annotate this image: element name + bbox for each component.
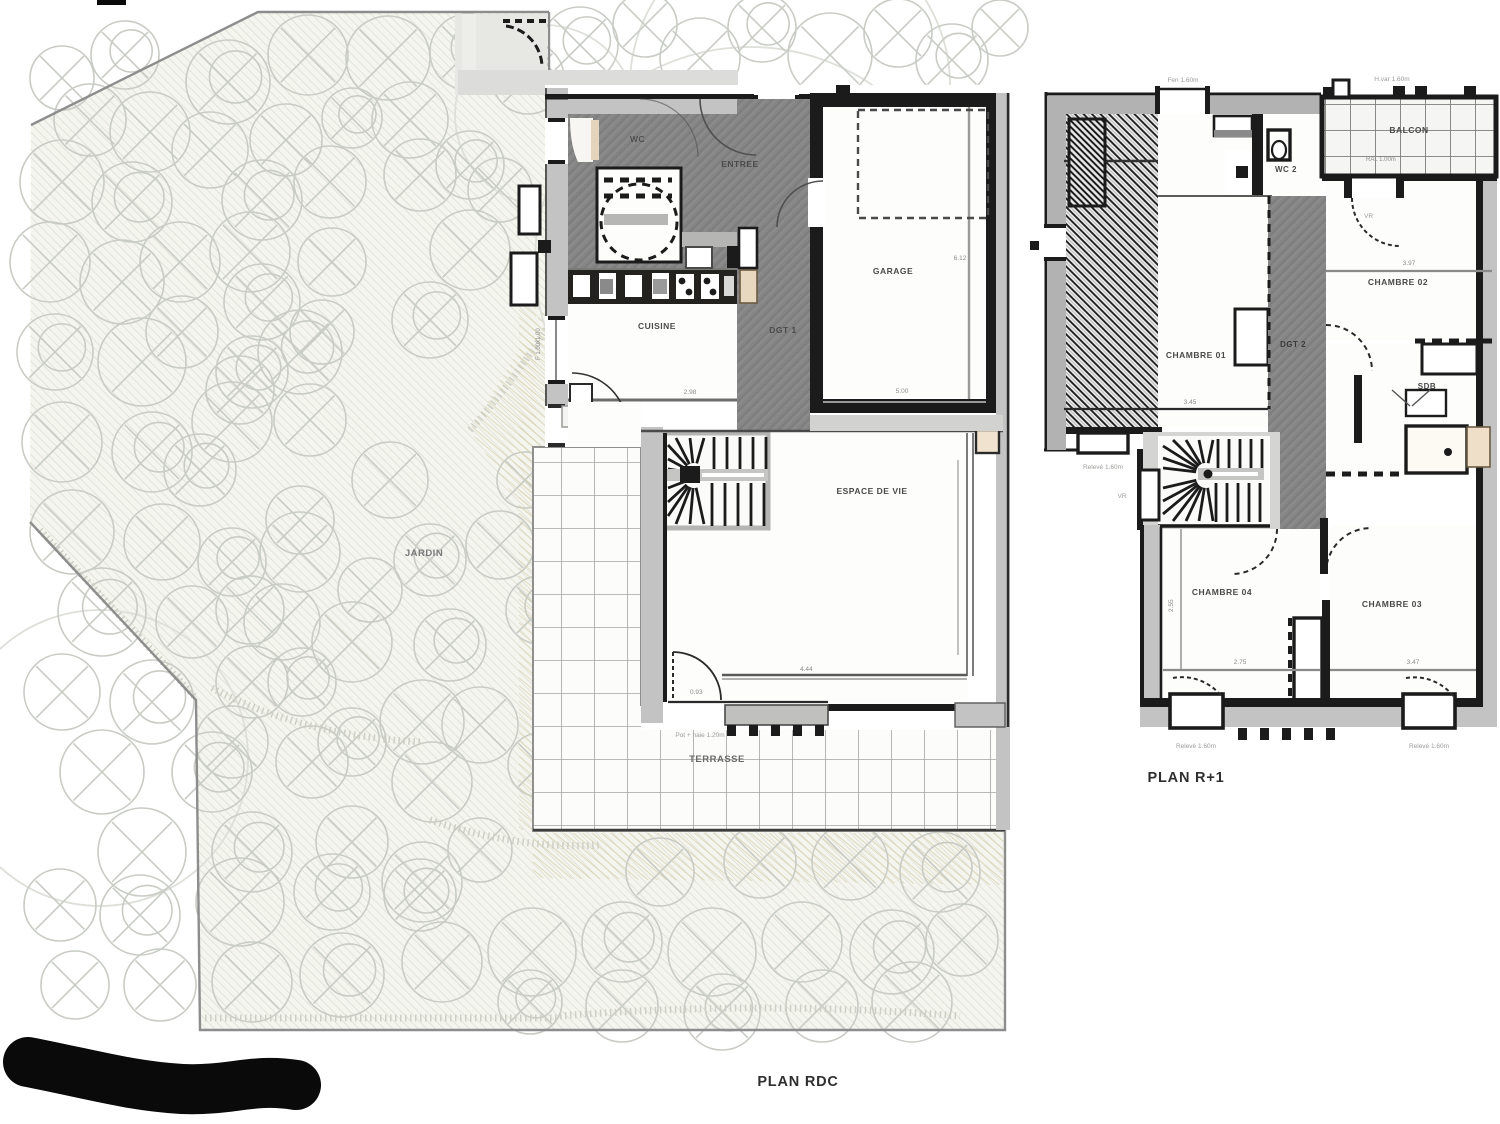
svg-text:PLAN RDC: PLAN RDC	[757, 1074, 838, 1090]
svg-text:WC 2: WC 2	[1275, 165, 1297, 174]
svg-text:CHAMBRE 01: CHAMBRE 01	[1166, 350, 1226, 360]
svg-text:CHAMBRE 02: CHAMBRE 02	[1368, 277, 1428, 287]
svg-text:H.var 1.60m: H.var 1.60m	[1374, 76, 1409, 83]
svg-text:3.97: 3.97	[1403, 260, 1416, 267]
svg-text:3.45: 3.45	[1184, 399, 1197, 406]
svg-text:VR: VR	[1117, 493, 1126, 500]
svg-text:WC: WC	[630, 134, 645, 144]
svg-text:Fen 1.60m: Fen 1.60m	[1167, 77, 1198, 84]
svg-text:2.75: 2.75	[1234, 659, 1247, 666]
svg-text:RAL 1.00m: RAL 1.00m	[1366, 157, 1396, 163]
svg-text:4.44: 4.44	[800, 666, 813, 673]
svg-text:6.12: 6.12	[954, 255, 967, 262]
svg-text:CHAMBRE 03: CHAMBRE 03	[1362, 599, 1422, 609]
svg-text:Relevé 1.60m: Relevé 1.60m	[1083, 464, 1123, 471]
svg-text:DGT 1: DGT 1	[769, 325, 797, 335]
svg-text:CUISINE: CUISINE	[638, 321, 676, 331]
svg-text:ESPACE DE VIE: ESPACE DE VIE	[836, 486, 907, 496]
svg-text:3.47: 3.47	[1407, 659, 1420, 666]
svg-text:2.55: 2.55	[1168, 599, 1175, 612]
svg-text:TERRASSE: TERRASSE	[689, 754, 745, 765]
svg-text:VR: VR	[1364, 213, 1373, 220]
svg-text:Relevé 1.60m: Relevé 1.60m	[1409, 743, 1449, 750]
svg-text:ENTREE: ENTREE	[721, 159, 758, 169]
svg-text:JARDIN: JARDIN	[405, 548, 443, 559]
svg-text:Relevé 1.60m: Relevé 1.60m	[1176, 743, 1216, 750]
svg-text:DGT 2: DGT 2	[1280, 340, 1306, 349]
svg-text:F 1.00x1.00: F 1.00x1.00	[536, 328, 542, 360]
svg-text:5.00: 5.00	[896, 388, 909, 395]
svg-text:BALCON: BALCON	[1389, 125, 1428, 135]
svg-text:2.98: 2.98	[684, 389, 697, 396]
svg-text:CHAMBRE 04: CHAMBRE 04	[1192, 587, 1252, 597]
svg-text:PLAN R+1: PLAN R+1	[1148, 770, 1225, 786]
svg-text:GARAGE: GARAGE	[873, 266, 913, 276]
svg-text:0.93: 0.93	[690, 689, 703, 696]
svg-text:Pot + haie 1.20m: Pot + haie 1.20m	[675, 732, 724, 739]
